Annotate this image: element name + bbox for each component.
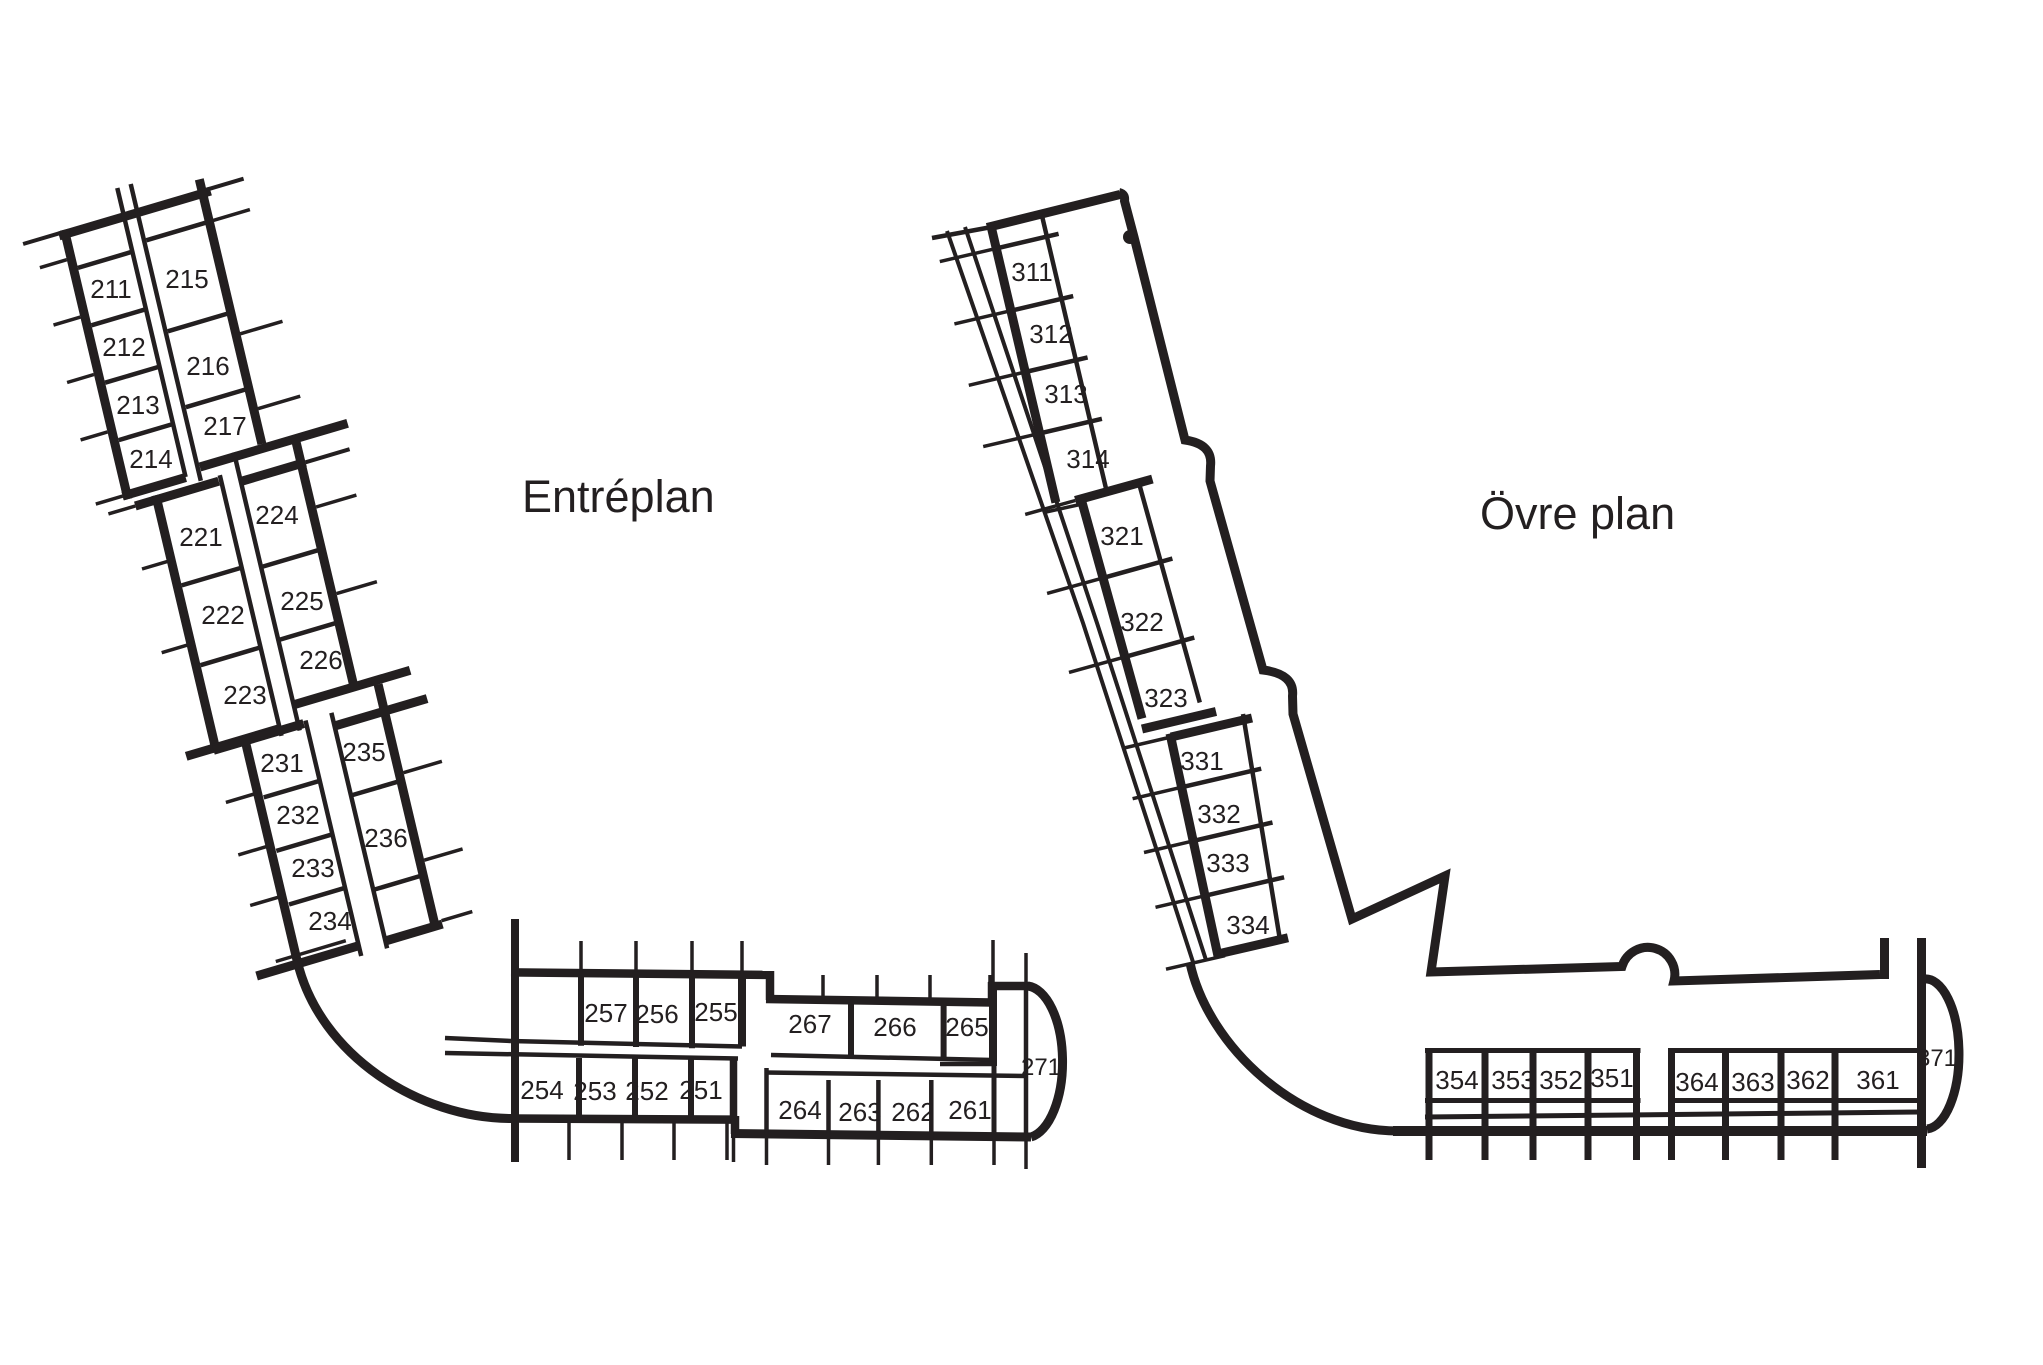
svg-text:353: 353 (1491, 1065, 1534, 1095)
svg-text:234: 234 (308, 906, 351, 936)
svg-text:264: 264 (778, 1095, 821, 1125)
svg-text:251: 251 (679, 1075, 722, 1105)
svg-text:222: 222 (201, 600, 244, 630)
svg-text:261: 261 (948, 1095, 991, 1125)
svg-text:314: 314 (1066, 444, 1109, 474)
svg-text:221: 221 (179, 522, 222, 552)
svg-text:235: 235 (342, 737, 385, 767)
svg-text:364: 364 (1675, 1067, 1718, 1097)
svg-text:225: 225 (280, 586, 323, 616)
svg-text:214: 214 (129, 444, 172, 474)
svg-text:236: 236 (364, 823, 407, 853)
svg-text:371: 371 (1917, 1045, 1957, 1072)
svg-text:322: 322 (1120, 607, 1163, 637)
svg-text:265: 265 (945, 1012, 988, 1042)
svg-text:312: 312 (1029, 319, 1072, 349)
svg-text:331: 331 (1180, 746, 1223, 776)
svg-text:351: 351 (1590, 1063, 1633, 1093)
svg-text:311: 311 (1011, 257, 1052, 287)
svg-text:323: 323 (1144, 683, 1187, 713)
svg-text:271: 271 (1021, 1054, 1061, 1081)
svg-text:226: 226 (299, 645, 342, 675)
svg-text:321: 321 (1100, 521, 1143, 551)
svg-text:313: 313 (1044, 379, 1087, 409)
svg-text:Entréplan: Entréplan (522, 471, 715, 522)
svg-text:266: 266 (873, 1012, 916, 1042)
svg-text:232: 232 (276, 800, 319, 830)
svg-text:254: 254 (520, 1075, 563, 1105)
svg-text:362: 362 (1786, 1065, 1829, 1095)
svg-text:Övre plan: Övre plan (1480, 488, 1675, 539)
svg-text:255: 255 (694, 997, 737, 1027)
svg-text:334: 334 (1226, 910, 1269, 940)
svg-text:253: 253 (573, 1076, 616, 1106)
svg-text:333: 333 (1206, 848, 1249, 878)
svg-text:224: 224 (255, 500, 298, 530)
svg-text:352: 352 (1539, 1065, 1582, 1095)
svg-text:257: 257 (584, 998, 627, 1028)
svg-text:256: 256 (635, 999, 678, 1029)
svg-text:213: 213 (116, 390, 159, 420)
svg-text:223: 223 (223, 680, 266, 710)
svg-text:217: 217 (203, 411, 246, 441)
svg-text:252: 252 (625, 1076, 668, 1106)
svg-text:363: 363 (1731, 1067, 1774, 1097)
svg-text:216: 216 (186, 351, 229, 381)
svg-text:262: 262 (891, 1097, 934, 1127)
svg-text:361: 361 (1856, 1065, 1899, 1095)
svg-text:263: 263 (838, 1097, 881, 1127)
svg-text:212: 212 (102, 332, 145, 362)
svg-text:332: 332 (1197, 799, 1240, 829)
svg-text:267: 267 (788, 1009, 831, 1039)
svg-text:231: 231 (260, 748, 303, 778)
svg-text:233: 233 (291, 853, 334, 883)
svg-text:354: 354 (1435, 1065, 1478, 1095)
svg-text:211: 211 (90, 274, 131, 304)
svg-text:215: 215 (165, 264, 208, 294)
